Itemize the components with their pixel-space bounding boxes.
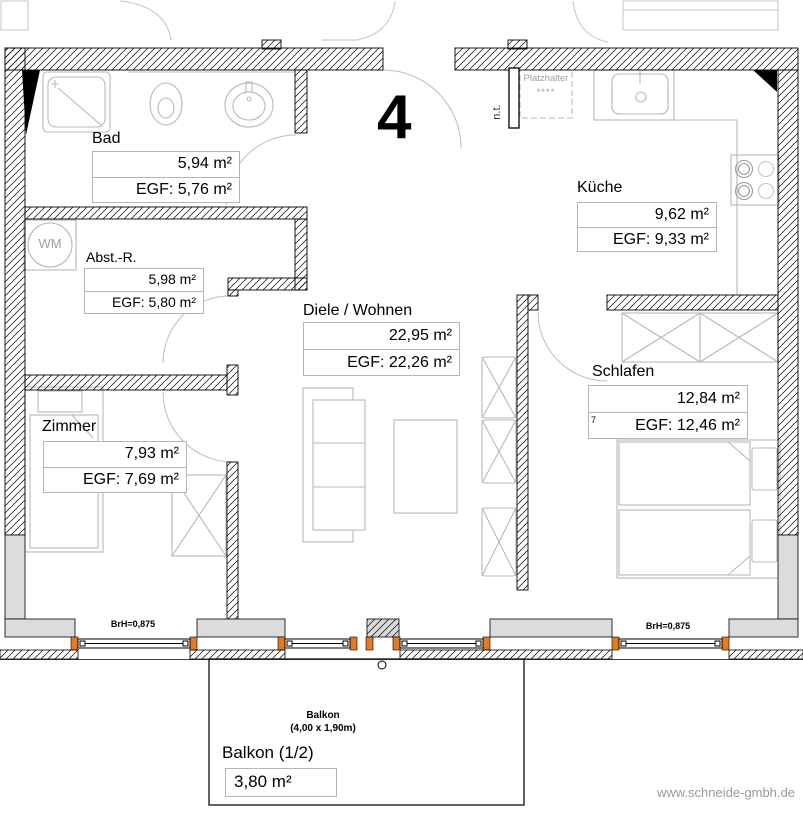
stove-icon bbox=[731, 155, 779, 205]
windows bbox=[78, 639, 722, 648]
egf-value: EGF: 5,80 m² bbox=[85, 291, 203, 313]
window-wohnen-right bbox=[400, 639, 483, 648]
kitchen-sink-icon bbox=[594, 70, 674, 120]
placeholder-label: Platzhalter bbox=[518, 74, 574, 84]
wardrobe-schlafen-icon bbox=[622, 313, 778, 362]
egf-value: EGF: 7,69 m² bbox=[44, 467, 186, 492]
area-box-kueche: 9,62 m² EGF: 9,33 m² bbox=[577, 202, 717, 252]
double-bed-icon bbox=[617, 440, 780, 578]
area-box-balkon: 3,80 m² bbox=[225, 768, 337, 797]
shower-icon bbox=[43, 72, 110, 132]
room-name-schlafen: Schlafen bbox=[592, 363, 654, 381]
area-value: 12,84 m² bbox=[589, 386, 747, 412]
duct-wedge-right bbox=[753, 70, 777, 92]
website-footer: www.schneide-gmbh.de bbox=[620, 786, 795, 800]
egf-value: EGF: 5,76 m² bbox=[93, 177, 239, 202]
egf-value: EGF: 22,26 m² bbox=[304, 349, 459, 375]
room-name-zimmer: Zimmer bbox=[42, 418, 96, 436]
balkon-small-name: Balkon bbox=[268, 710, 378, 721]
area-value: 3,80 m² bbox=[226, 769, 336, 796]
room-name-bad: Bad bbox=[92, 130, 120, 148]
area-value: 5,98 m² bbox=[85, 269, 203, 291]
egf-value: EGF: 9,33 m² bbox=[578, 227, 716, 251]
base-strips bbox=[0, 650, 803, 659]
area-value: 7,93 m² bbox=[44, 442, 186, 467]
room-name-balkon: Balkon (1/2) bbox=[222, 744, 314, 763]
area-box-zimmer: 7,93 m² EGF: 7,69 m² bbox=[43, 441, 187, 493]
apartment-number: 4 bbox=[377, 88, 411, 148]
area-value: 9,62 m² bbox=[578, 203, 716, 227]
area-box-diele: 22,95 m² EGF: 22,26 m² bbox=[303, 322, 460, 376]
window-zimmer bbox=[78, 639, 190, 648]
area-box-bad: 5,94 m² EGF: 5,76 m² bbox=[92, 151, 240, 203]
area-value: 22,95 m² bbox=[304, 323, 459, 349]
table-icon bbox=[394, 420, 457, 513]
nt-label: n.t. bbox=[491, 96, 503, 128]
room-name-diele: Diele / Wohnen bbox=[303, 302, 412, 320]
toilet-icon bbox=[150, 83, 182, 125]
placeholder-stars: **** bbox=[518, 88, 574, 98]
window-wohnen-left bbox=[285, 639, 350, 648]
window-schlafen bbox=[619, 639, 722, 648]
sofa-icon bbox=[303, 388, 365, 542]
washing-machine-label: WM bbox=[27, 237, 73, 251]
floor-plan: 4 Bad 5,94 m² EGF: 5,76 m² Küche 9,62 m²… bbox=[0, 0, 803, 824]
room-name-abstellraum: Abst.-R. bbox=[86, 250, 137, 265]
area-box-schlafen: 12,84 m² EGF: 12,46 m² bbox=[588, 385, 748, 439]
shelf-icon bbox=[482, 357, 516, 576]
egf-value: EGF: 12,46 m² bbox=[589, 412, 747, 438]
balcony-door-handle bbox=[378, 661, 386, 669]
area-box-abstellraum: 5,98 m² EGF: 5,80 m² bbox=[84, 268, 204, 314]
exterior-decorations bbox=[1, 1, 778, 42]
room-name-kueche: Küche bbox=[577, 179, 622, 197]
washbasin-icon bbox=[225, 82, 273, 127]
schlafen-mark: 7 bbox=[591, 416, 596, 426]
balkon-dimensions: (4,00 x 1,90m) bbox=[258, 723, 388, 734]
area-value: 5,94 m² bbox=[93, 152, 239, 177]
sill-height-label-left: BrH=0,875 bbox=[93, 620, 173, 630]
balcony-door-block bbox=[367, 619, 399, 637]
sill-height-label-right: BrH=0,875 bbox=[628, 622, 708, 632]
